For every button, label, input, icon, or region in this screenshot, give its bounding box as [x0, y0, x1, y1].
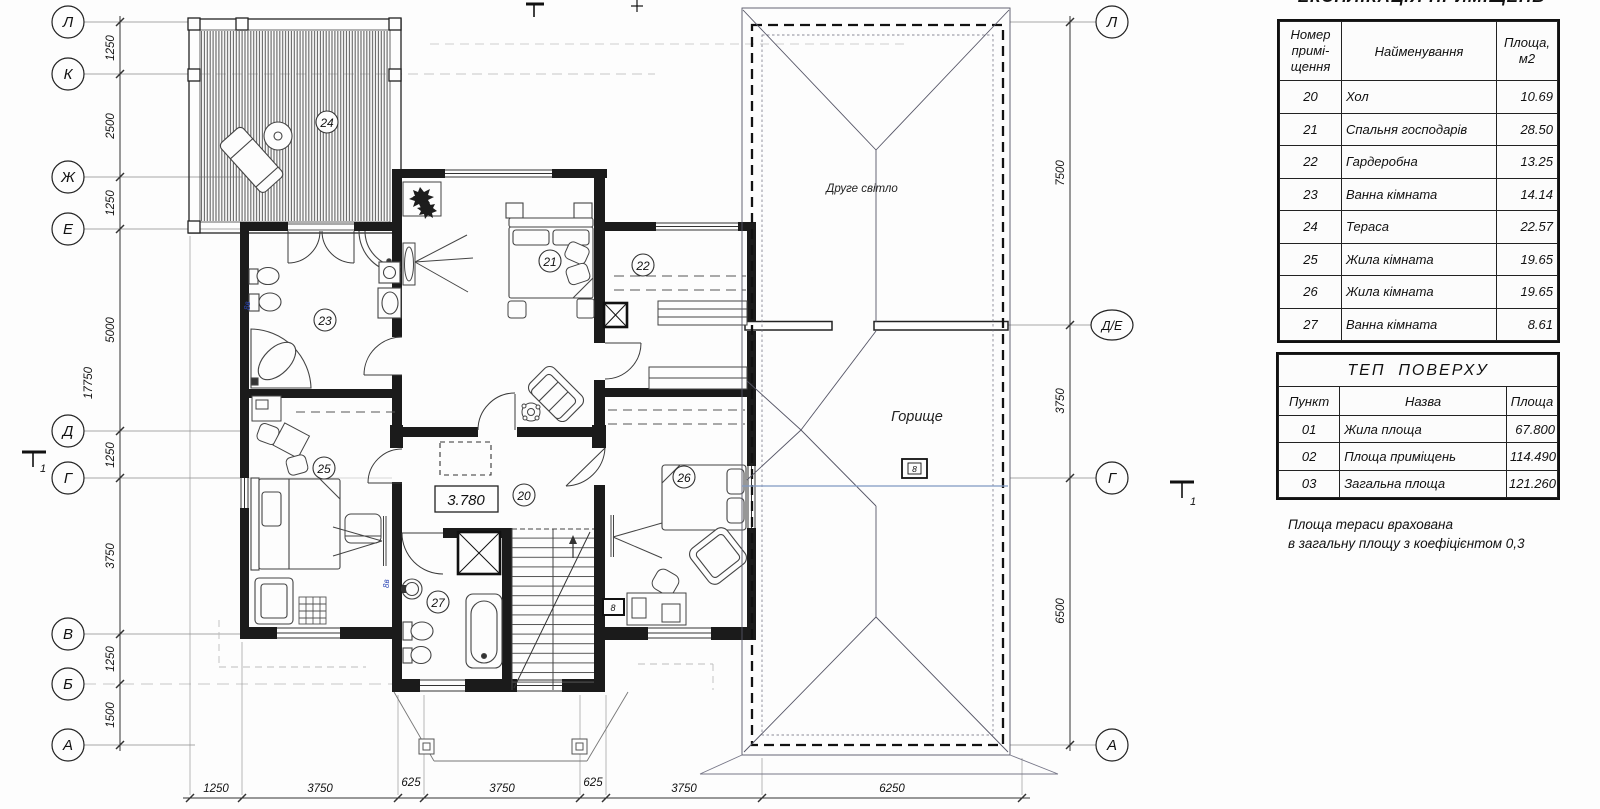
- svg-text:Л: Л: [62, 14, 74, 31]
- svg-text:1250: 1250: [105, 646, 117, 672]
- svg-text:24: 24: [319, 116, 334, 130]
- svg-text:1250: 1250: [203, 783, 229, 795]
- svg-text:В: В: [63, 626, 73, 643]
- svg-text:23: 23: [317, 314, 332, 328]
- svg-text:3750: 3750: [1055, 388, 1067, 414]
- svg-text:2500: 2500: [105, 113, 117, 140]
- svg-text:Ж: Ж: [60, 169, 76, 186]
- svg-text:625: 625: [401, 777, 421, 789]
- svg-text:5000: 5000: [105, 317, 117, 343]
- svg-text:Л: Л: [1106, 14, 1118, 31]
- svg-text:А: А: [62, 737, 73, 754]
- svg-text:625: 625: [583, 777, 603, 789]
- svg-text:3750: 3750: [105, 543, 117, 569]
- svg-text:25: 25: [316, 462, 331, 476]
- svg-text:1: 1: [40, 463, 46, 475]
- svg-text:К: К: [64, 66, 74, 83]
- svg-text:1250: 1250: [105, 190, 117, 216]
- svg-text:1250: 1250: [105, 35, 117, 61]
- svg-text:8: 8: [610, 603, 615, 613]
- svg-text:Д: Д: [61, 423, 74, 440]
- svg-text:21: 21: [542, 255, 556, 269]
- svg-text:А: А: [1106, 737, 1117, 754]
- svg-text:Е: Е: [63, 221, 74, 238]
- svg-text:6250: 6250: [879, 783, 905, 795]
- svg-text:22: 22: [635, 259, 650, 273]
- svg-text:3750: 3750: [307, 783, 333, 795]
- svg-text:1: 1: [1190, 496, 1196, 508]
- svg-text:3.780: 3.780: [447, 492, 485, 509]
- svg-text:7500: 7500: [1055, 160, 1067, 186]
- svg-text:1500: 1500: [105, 702, 117, 728]
- svg-text:26: 26: [676, 471, 691, 485]
- svg-text:8в: 8в: [382, 579, 391, 588]
- svg-text:3750: 3750: [671, 783, 697, 795]
- svg-text:20: 20: [516, 489, 531, 503]
- svg-text:Друге світло: Друге світло: [824, 183, 898, 195]
- svg-text:6500: 6500: [1055, 598, 1067, 624]
- svg-text:8: 8: [912, 464, 917, 474]
- svg-text:Горище: Горище: [891, 409, 943, 425]
- svg-text:17750: 17750: [83, 366, 95, 399]
- svg-text:Б: Б: [63, 676, 73, 693]
- svg-text:8в: 8в: [243, 301, 252, 310]
- svg-text:3750: 3750: [489, 783, 515, 795]
- svg-text:27: 27: [430, 596, 446, 610]
- svg-text:Д/Е: Д/Е: [1100, 319, 1123, 333]
- svg-text:1250: 1250: [105, 442, 117, 468]
